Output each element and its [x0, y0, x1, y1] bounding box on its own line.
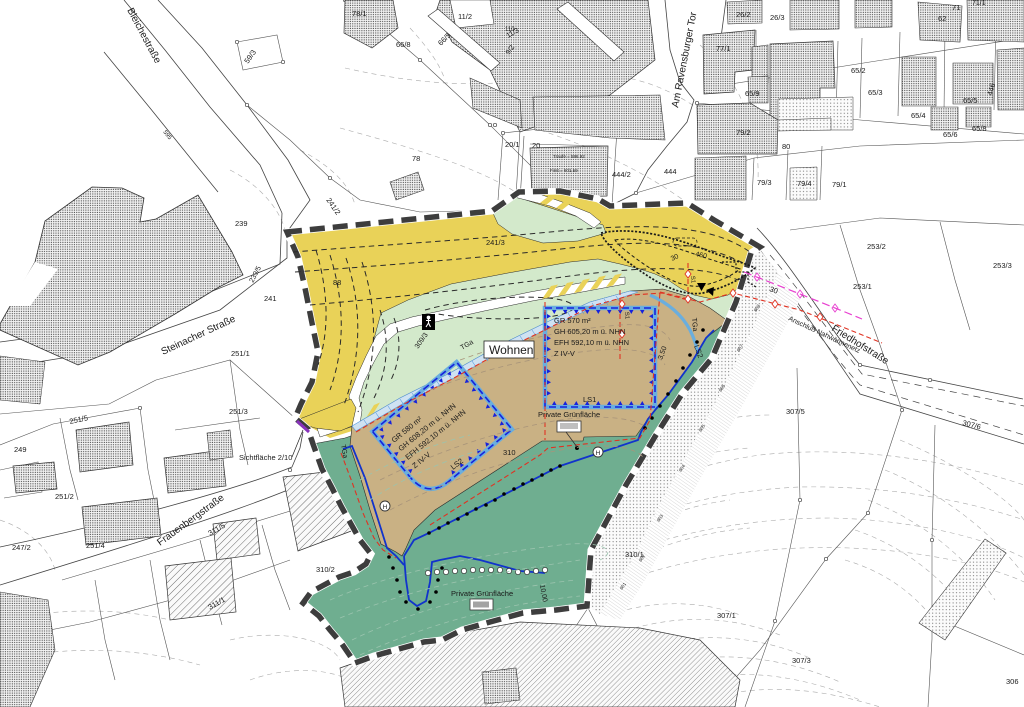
svg-text:79/1: 79/1: [832, 180, 847, 189]
svg-text:78: 78: [412, 154, 420, 163]
svg-text:LS1: LS1: [583, 395, 596, 404]
svg-text:71/1: 71/1: [972, 0, 986, 7]
svg-text:444: 444: [664, 167, 677, 176]
svg-text:306: 306: [1006, 677, 1019, 686]
svg-text:Private Grünfläche: Private Grünfläche: [538, 410, 600, 419]
svg-text:253/1: 253/1: [853, 282, 872, 291]
svg-text:H: H: [383, 504, 388, 511]
svg-text:79/3: 79/3: [757, 178, 772, 187]
svg-text:S1: S1: [689, 276, 696, 284]
svg-text:62: 62: [938, 14, 946, 23]
svg-text:241/3: 241/3: [486, 238, 505, 247]
svg-text:251/2: 251/2: [55, 492, 74, 501]
svg-text:Sichtfläche 2/10: Sichtfläche 2/10: [239, 453, 292, 462]
svg-text:88: 88: [333, 278, 341, 287]
svg-text:EFH 592,10 m ü. NHN: EFH 592,10 m ü. NHN: [554, 338, 629, 347]
svg-text:241: 241: [264, 294, 277, 303]
svg-text:Z IV-V: Z IV-V: [554, 349, 575, 358]
svg-text:307/5: 307/5: [786, 407, 805, 416]
svg-text:65/2: 65/2: [851, 66, 866, 75]
svg-text:H: H: [596, 450, 601, 457]
svg-text:247/2: 247/2: [12, 543, 31, 552]
svg-text:251/1: 251/1: [231, 349, 250, 358]
svg-text:65/6: 65/6: [943, 130, 958, 139]
svg-text:253/2: 253/2: [867, 242, 886, 251]
svg-text:20/1: 20/1: [505, 140, 520, 149]
svg-text:80: 80: [782, 142, 790, 151]
svg-text:GH 605,20 m ü. NHN: GH 605,20 m ü. NHN: [554, 327, 625, 336]
svg-text:78/1: 78/1: [352, 9, 367, 18]
svg-text:79/2: 79/2: [736, 128, 751, 137]
svg-text:GR 570 m²: GR 570 m²: [554, 316, 591, 325]
svg-text:11/2: 11/2: [458, 12, 472, 21]
svg-text:Wohnen: Wohnen: [489, 343, 533, 357]
svg-text:253/3: 253/3: [993, 261, 1012, 270]
svg-text:307/1: 307/1: [717, 611, 736, 620]
svg-text:Private Grünfläche: Private Grünfläche: [451, 589, 513, 598]
svg-text:249: 249: [14, 445, 27, 454]
svg-text:65/8: 65/8: [972, 124, 987, 133]
svg-text:65/9: 65/9: [745, 89, 760, 98]
svg-text:66/8: 66/8: [396, 40, 411, 49]
svg-text:65/5: 65/5: [963, 96, 978, 105]
svg-text:251/4: 251/4: [86, 541, 105, 550]
svg-text:239: 239: [235, 219, 248, 228]
svg-text:20: 20: [532, 141, 540, 150]
svg-text:S1: S1: [623, 312, 630, 320]
svg-text:26/2: 26/2: [736, 10, 751, 19]
svg-text:444/2: 444/2: [612, 170, 631, 179]
svg-text:310/2: 310/2: [316, 565, 335, 574]
svg-text:TGa: TGa: [690, 318, 698, 332]
svg-text:310: 310: [503, 448, 516, 457]
svg-text:79/4: 79/4: [797, 179, 812, 188]
svg-text:First = 601.59: First = 601.59: [550, 168, 578, 173]
svg-text:71: 71: [952, 3, 960, 12]
svg-text:65/4: 65/4: [911, 111, 926, 120]
svg-text:Traufe = 596.92: Traufe = 596.92: [553, 154, 585, 159]
svg-text:251/3: 251/3: [229, 407, 248, 416]
svg-text:77/1: 77/1: [716, 44, 731, 53]
svg-text:26/3: 26/3: [770, 13, 785, 22]
svg-text:65/3: 65/3: [868, 88, 883, 97]
svg-text:307/3: 307/3: [792, 656, 811, 665]
